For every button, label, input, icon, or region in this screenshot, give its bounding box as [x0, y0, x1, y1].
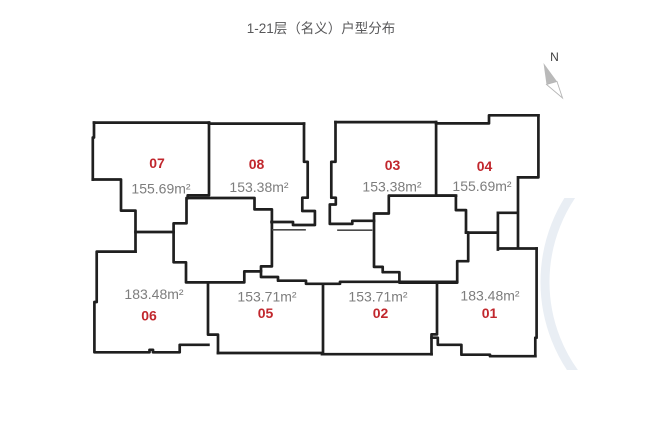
svg-text:06: 06 — [141, 307, 157, 323]
svg-text:153.38m²: 153.38m² — [229, 179, 288, 195]
svg-text:02: 02 — [373, 305, 389, 321]
svg-text:08: 08 — [249, 156, 265, 172]
svg-text:03: 03 — [385, 157, 401, 173]
svg-text:05: 05 — [258, 305, 274, 321]
svg-text:01: 01 — [482, 305, 498, 321]
svg-text:07: 07 — [149, 155, 165, 171]
svg-text:155.69m²: 155.69m² — [452, 178, 511, 194]
svg-text:153.71m²: 153.71m² — [348, 288, 407, 304]
svg-text:N: N — [550, 50, 559, 64]
svg-text:155.69m²: 155.69m² — [131, 180, 190, 196]
svg-text:153.71m²: 153.71m² — [237, 288, 296, 304]
svg-text:1-21层（名义）户型分布: 1-21层（名义）户型分布 — [247, 20, 396, 36]
svg-text:183.48m²: 183.48m² — [460, 287, 519, 303]
svg-text:04: 04 — [477, 158, 493, 174]
svg-text:153.38m²: 153.38m² — [362, 178, 421, 194]
svg-text:183.48m²: 183.48m² — [124, 286, 183, 302]
